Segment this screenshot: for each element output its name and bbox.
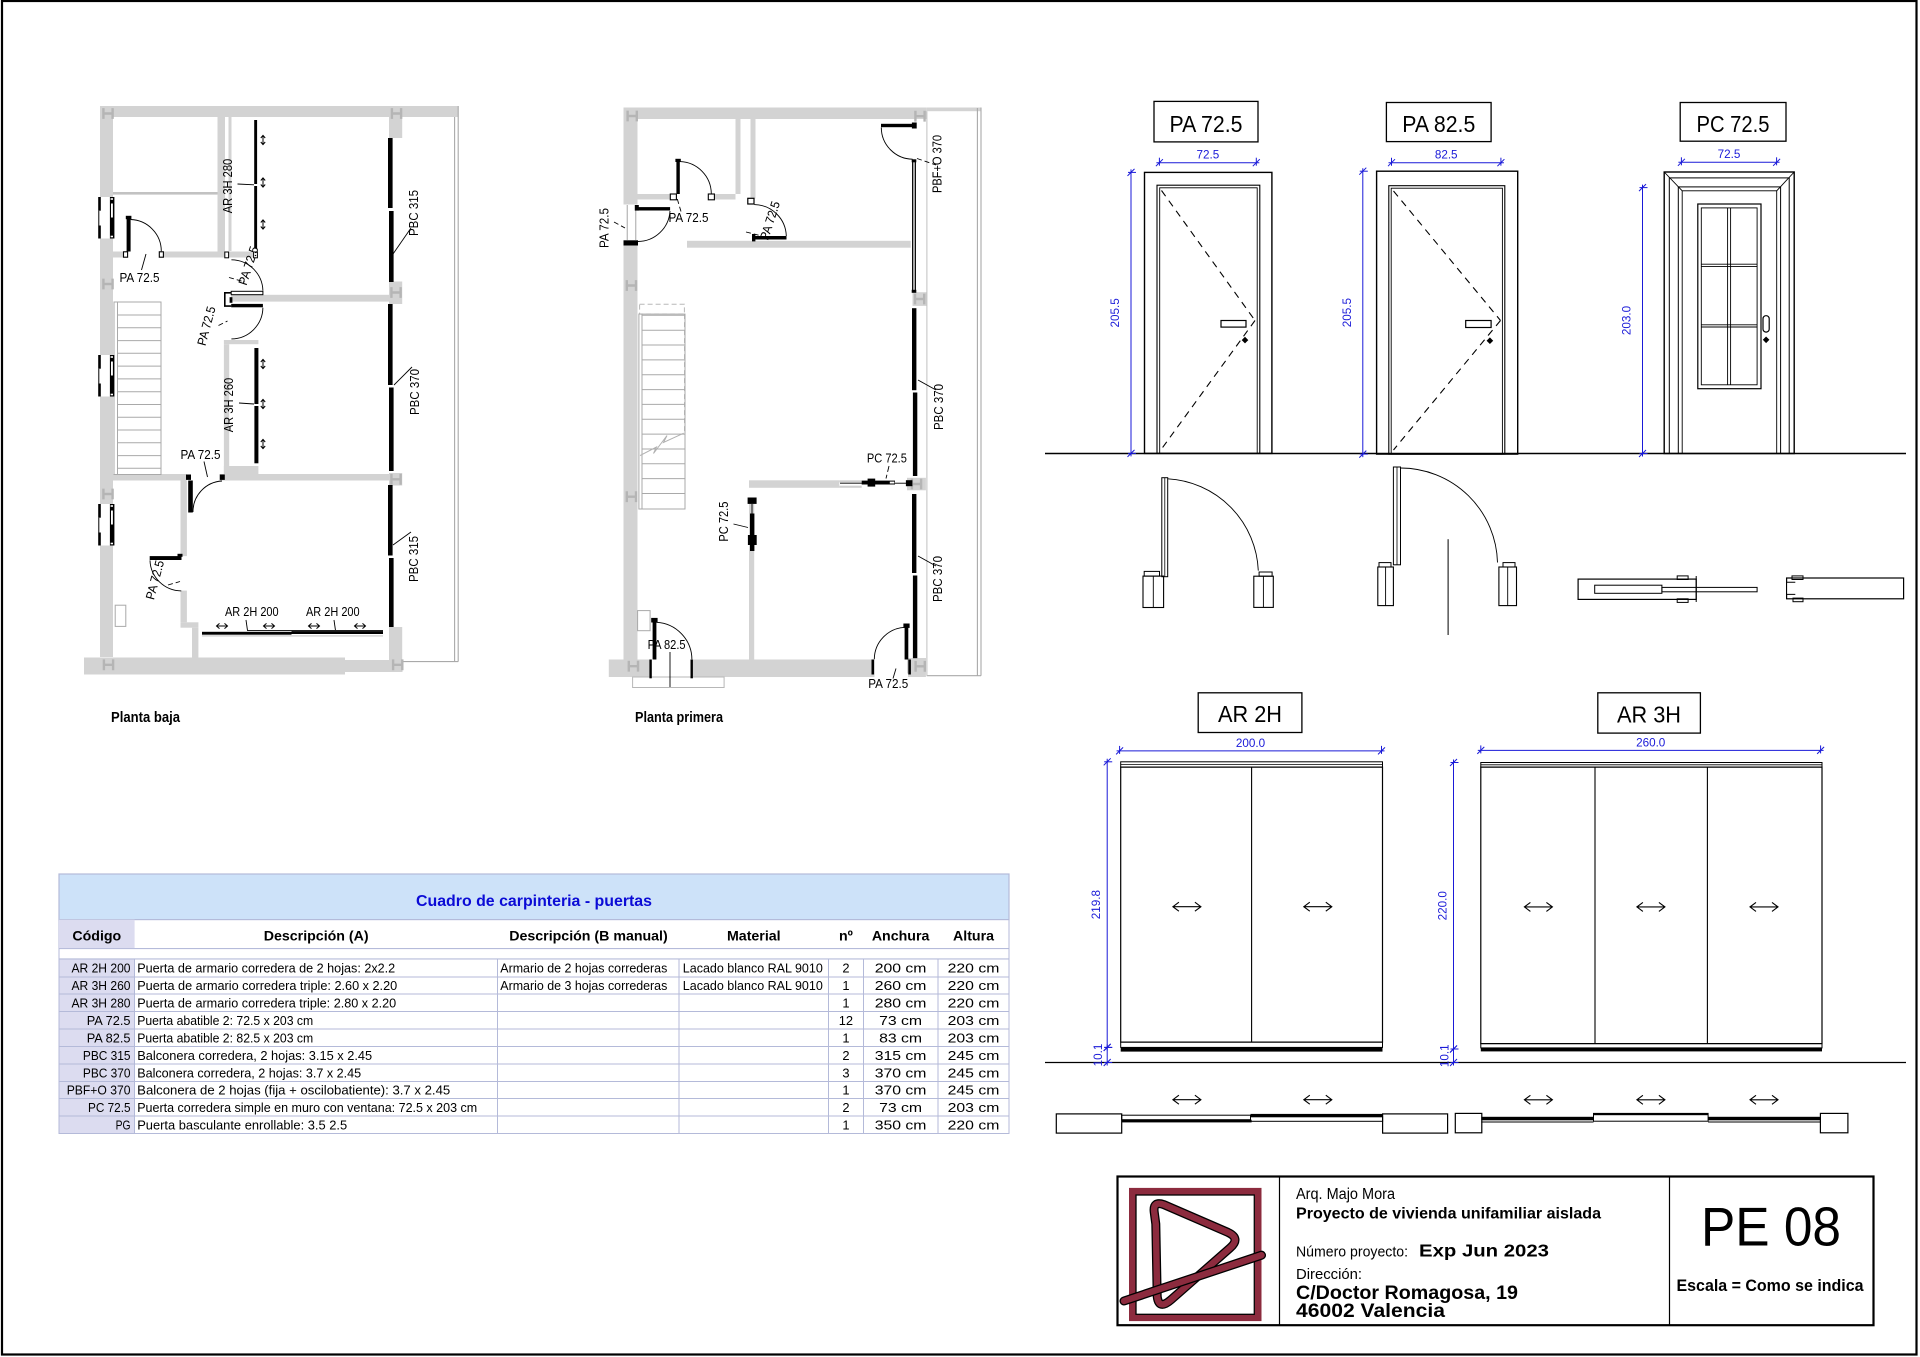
svg-text:370 cm: 370 cm — [875, 1065, 927, 1080]
svg-text:PE 08: PE 08 — [1701, 1196, 1841, 1258]
svg-text:PA 82.5: PA 82.5 — [1402, 111, 1475, 137]
svg-text:Escala = Como se indica: Escala = Como se indica — [1677, 1277, 1865, 1295]
svg-text:AR 2H 200: AR 2H 200 — [72, 960, 131, 975]
svg-text:PA 72.5: PA 72.5 — [598, 208, 612, 248]
svg-text:Material: Material — [727, 929, 781, 945]
svg-text:PBC 315: PBC 315 — [407, 536, 421, 582]
svg-text:219.8: 219.8 — [1090, 890, 1103, 919]
svg-text:3: 3 — [842, 1065, 849, 1080]
svg-text:2: 2 — [842, 960, 849, 975]
svg-text:245 cm: 245 cm — [948, 1048, 1000, 1063]
svg-text:Puerta abatible 2: 82.5 x 203: Puerta abatible 2: 82.5 x 203 cm — [137, 1030, 313, 1045]
svg-text:200.0: 200.0 — [1236, 737, 1266, 750]
svg-text:1: 1 — [842, 1083, 849, 1098]
svg-text:203 cm: 203 cm — [948, 1030, 1000, 1045]
svg-text:Puerta corredera simple en mur: Puerta corredera simple en muro con vent… — [137, 1100, 477, 1115]
svg-text:73 cm: 73 cm — [879, 1100, 922, 1115]
svg-text:Puerta basculante enrollable:: Puerta basculante enrollable: 3.5 2.5 — [137, 1118, 347, 1133]
svg-text:200 cm: 200 cm — [875, 960, 927, 975]
svg-text:Puerta de armario corredera tr: Puerta de armario corredera triple: 2.60… — [137, 978, 397, 993]
svg-text:Anchura: Anchura — [872, 929, 930, 945]
svg-text:280 cm: 280 cm — [875, 996, 927, 1011]
svg-text:83 cm: 83 cm — [879, 1030, 922, 1045]
svg-text:72.5: 72.5 — [1718, 148, 1741, 161]
svg-text:nº: nº — [839, 929, 853, 945]
svg-text:10.1: 10.1 — [1439, 1044, 1452, 1067]
svg-text:PA 82.5: PA 82.5 — [87, 1030, 131, 1045]
svg-text:205.5: 205.5 — [1109, 298, 1122, 328]
svg-text:Planta baja: Planta baja — [111, 710, 181, 726]
svg-text:AR 2H 200: AR 2H 200 — [306, 605, 360, 619]
svg-text:Armario de 2 hojas correderas: Armario de 2 hojas correderas — [500, 960, 667, 975]
svg-text:PBC 315: PBC 315 — [83, 1048, 131, 1063]
svg-text:AR 3H 260: AR 3H 260 — [222, 378, 236, 433]
svg-text:PBC 370: PBC 370 — [83, 1065, 131, 1080]
svg-text:PA 72.5: PA 72.5 — [87, 1013, 131, 1028]
svg-text:Lacado blanco RAL 9010: Lacado blanco RAL 9010 — [683, 978, 823, 993]
svg-text:72.5: 72.5 — [1196, 149, 1219, 162]
svg-text:203.0: 203.0 — [1621, 305, 1634, 335]
svg-text:PG: PG — [116, 1118, 131, 1133]
svg-text:AR 2H 200: AR 2H 200 — [225, 605, 279, 619]
svg-text:AR 3H: AR 3H — [1617, 702, 1681, 728]
svg-text:205.5: 205.5 — [1341, 298, 1354, 328]
svg-text:PBF+O 370: PBF+O 370 — [67, 1083, 131, 1098]
svg-text:203 cm: 203 cm — [948, 1013, 1000, 1028]
svg-text:AR 2H: AR 2H — [1218, 701, 1282, 727]
svg-text:245 cm: 245 cm — [948, 1083, 1000, 1098]
svg-text:12: 12 — [839, 1013, 853, 1028]
svg-text:Puerta de armario corredera de: Puerta de armario corredera de 2 hojas: … — [137, 960, 395, 975]
svg-text:Arq. Majo Mora: Arq. Majo Mora — [1296, 1186, 1395, 1203]
svg-text:46002 Valencia: 46002 Valencia — [1296, 1301, 1445, 1322]
svg-text:220 cm: 220 cm — [948, 996, 1000, 1011]
svg-text:Puerta abatible 2: 72.5 x 203: Puerta abatible 2: 72.5 x 203 cm — [137, 1013, 313, 1028]
svg-text:82.5: 82.5 — [1435, 149, 1458, 162]
svg-text:Lacado blanco RAL 9010: Lacado blanco RAL 9010 — [683, 960, 823, 975]
svg-text:PA 72.5: PA 72.5 — [1170, 111, 1243, 137]
svg-text:PC 72.5: PC 72.5 — [867, 452, 907, 466]
svg-text:2: 2 — [842, 1100, 849, 1115]
svg-text:370 cm: 370 cm — [875, 1083, 927, 1098]
svg-text:AR 3H 280: AR 3H 280 — [221, 159, 235, 214]
svg-text:Altura: Altura — [953, 929, 994, 945]
svg-text:Código: Código — [72, 929, 121, 945]
svg-text:Proyecto de vivienda unifamili: Proyecto de vivienda unifamiliar aislada — [1296, 1206, 1601, 1223]
svg-text:Armario de 3 hojas correderas: Armario de 3 hojas correderas — [500, 978, 667, 993]
svg-text:PBC 315: PBC 315 — [407, 190, 421, 236]
svg-text:220 cm: 220 cm — [948, 1118, 1000, 1133]
svg-text:220 cm: 220 cm — [948, 960, 1000, 975]
svg-text:260.0: 260.0 — [1636, 736, 1666, 749]
svg-text:AR 3H 280: AR 3H 280 — [72, 996, 131, 1011]
svg-text:260 cm: 260 cm — [875, 978, 927, 993]
svg-text:Balconera de 2 hojas (fija + o: Balconera de 2 hojas (fija + oscilobatie… — [137, 1083, 450, 1098]
svg-text:PBC 370: PBC 370 — [408, 369, 422, 415]
svg-text:350 cm: 350 cm — [875, 1118, 927, 1133]
svg-text:220.0: 220.0 — [1437, 891, 1450, 921]
svg-text:Dirección:: Dirección: — [1296, 1266, 1362, 1283]
svg-text:PBC 370: PBC 370 — [931, 556, 945, 602]
svg-text:Exp Jun 2023: Exp Jun 2023 — [1419, 1241, 1549, 1261]
svg-text:Balconera corredera, 2 hojas:: Balconera corredera, 2 hojas: 3.15 x 2.4… — [137, 1048, 372, 1063]
svg-text:PC 72.5: PC 72.5 — [717, 502, 731, 542]
svg-text:315 cm: 315 cm — [875, 1048, 927, 1063]
svg-text:Balconera corredera, 2 hojas:: Balconera corredera, 2 hojas: 3.7 x 2.45 — [137, 1065, 361, 1080]
svg-text:PA 72.5: PA 72.5 — [120, 271, 160, 285]
svg-text:Número proyecto:: Número proyecto: — [1296, 1244, 1408, 1261]
svg-text:Planta primera: Planta primera — [635, 710, 724, 726]
svg-text:Cuadro de carpinteria - puerta: Cuadro de carpinteria - puertas — [416, 893, 652, 910]
svg-text:Puerta de armario corredera tr: Puerta de armario corredera triple: 2.80… — [137, 996, 396, 1011]
svg-text:1: 1 — [842, 1030, 849, 1045]
svg-text:1: 1 — [842, 1118, 849, 1133]
svg-text:PC 72.5: PC 72.5 — [1697, 111, 1770, 137]
svg-text:10.1: 10.1 — [1092, 1044, 1105, 1067]
svg-text:2: 2 — [842, 1048, 849, 1063]
svg-text:220 cm: 220 cm — [948, 978, 1000, 993]
svg-text:PBC 370: PBC 370 — [932, 384, 946, 430]
svg-text:73 cm: 73 cm — [879, 1013, 922, 1028]
svg-text:Descripción (A): Descripción (A) — [264, 929, 369, 945]
svg-text:PA 72.5: PA 72.5 — [868, 677, 908, 691]
svg-text:1: 1 — [842, 978, 849, 993]
svg-text:PC 72.5: PC 72.5 — [88, 1100, 131, 1115]
svg-text:AR 3H 260: AR 3H 260 — [72, 978, 131, 993]
svg-text:PA 72.5: PA 72.5 — [669, 211, 709, 225]
svg-text:245 cm: 245 cm — [948, 1065, 1000, 1080]
svg-text:1: 1 — [842, 996, 849, 1011]
svg-text:PA 72.5: PA 72.5 — [181, 448, 221, 462]
svg-text:Descripción (B manual): Descripción (B manual) — [509, 929, 668, 945]
svg-text:PA 82.5: PA 82.5 — [648, 638, 686, 652]
svg-text:203 cm: 203 cm — [948, 1100, 1000, 1115]
